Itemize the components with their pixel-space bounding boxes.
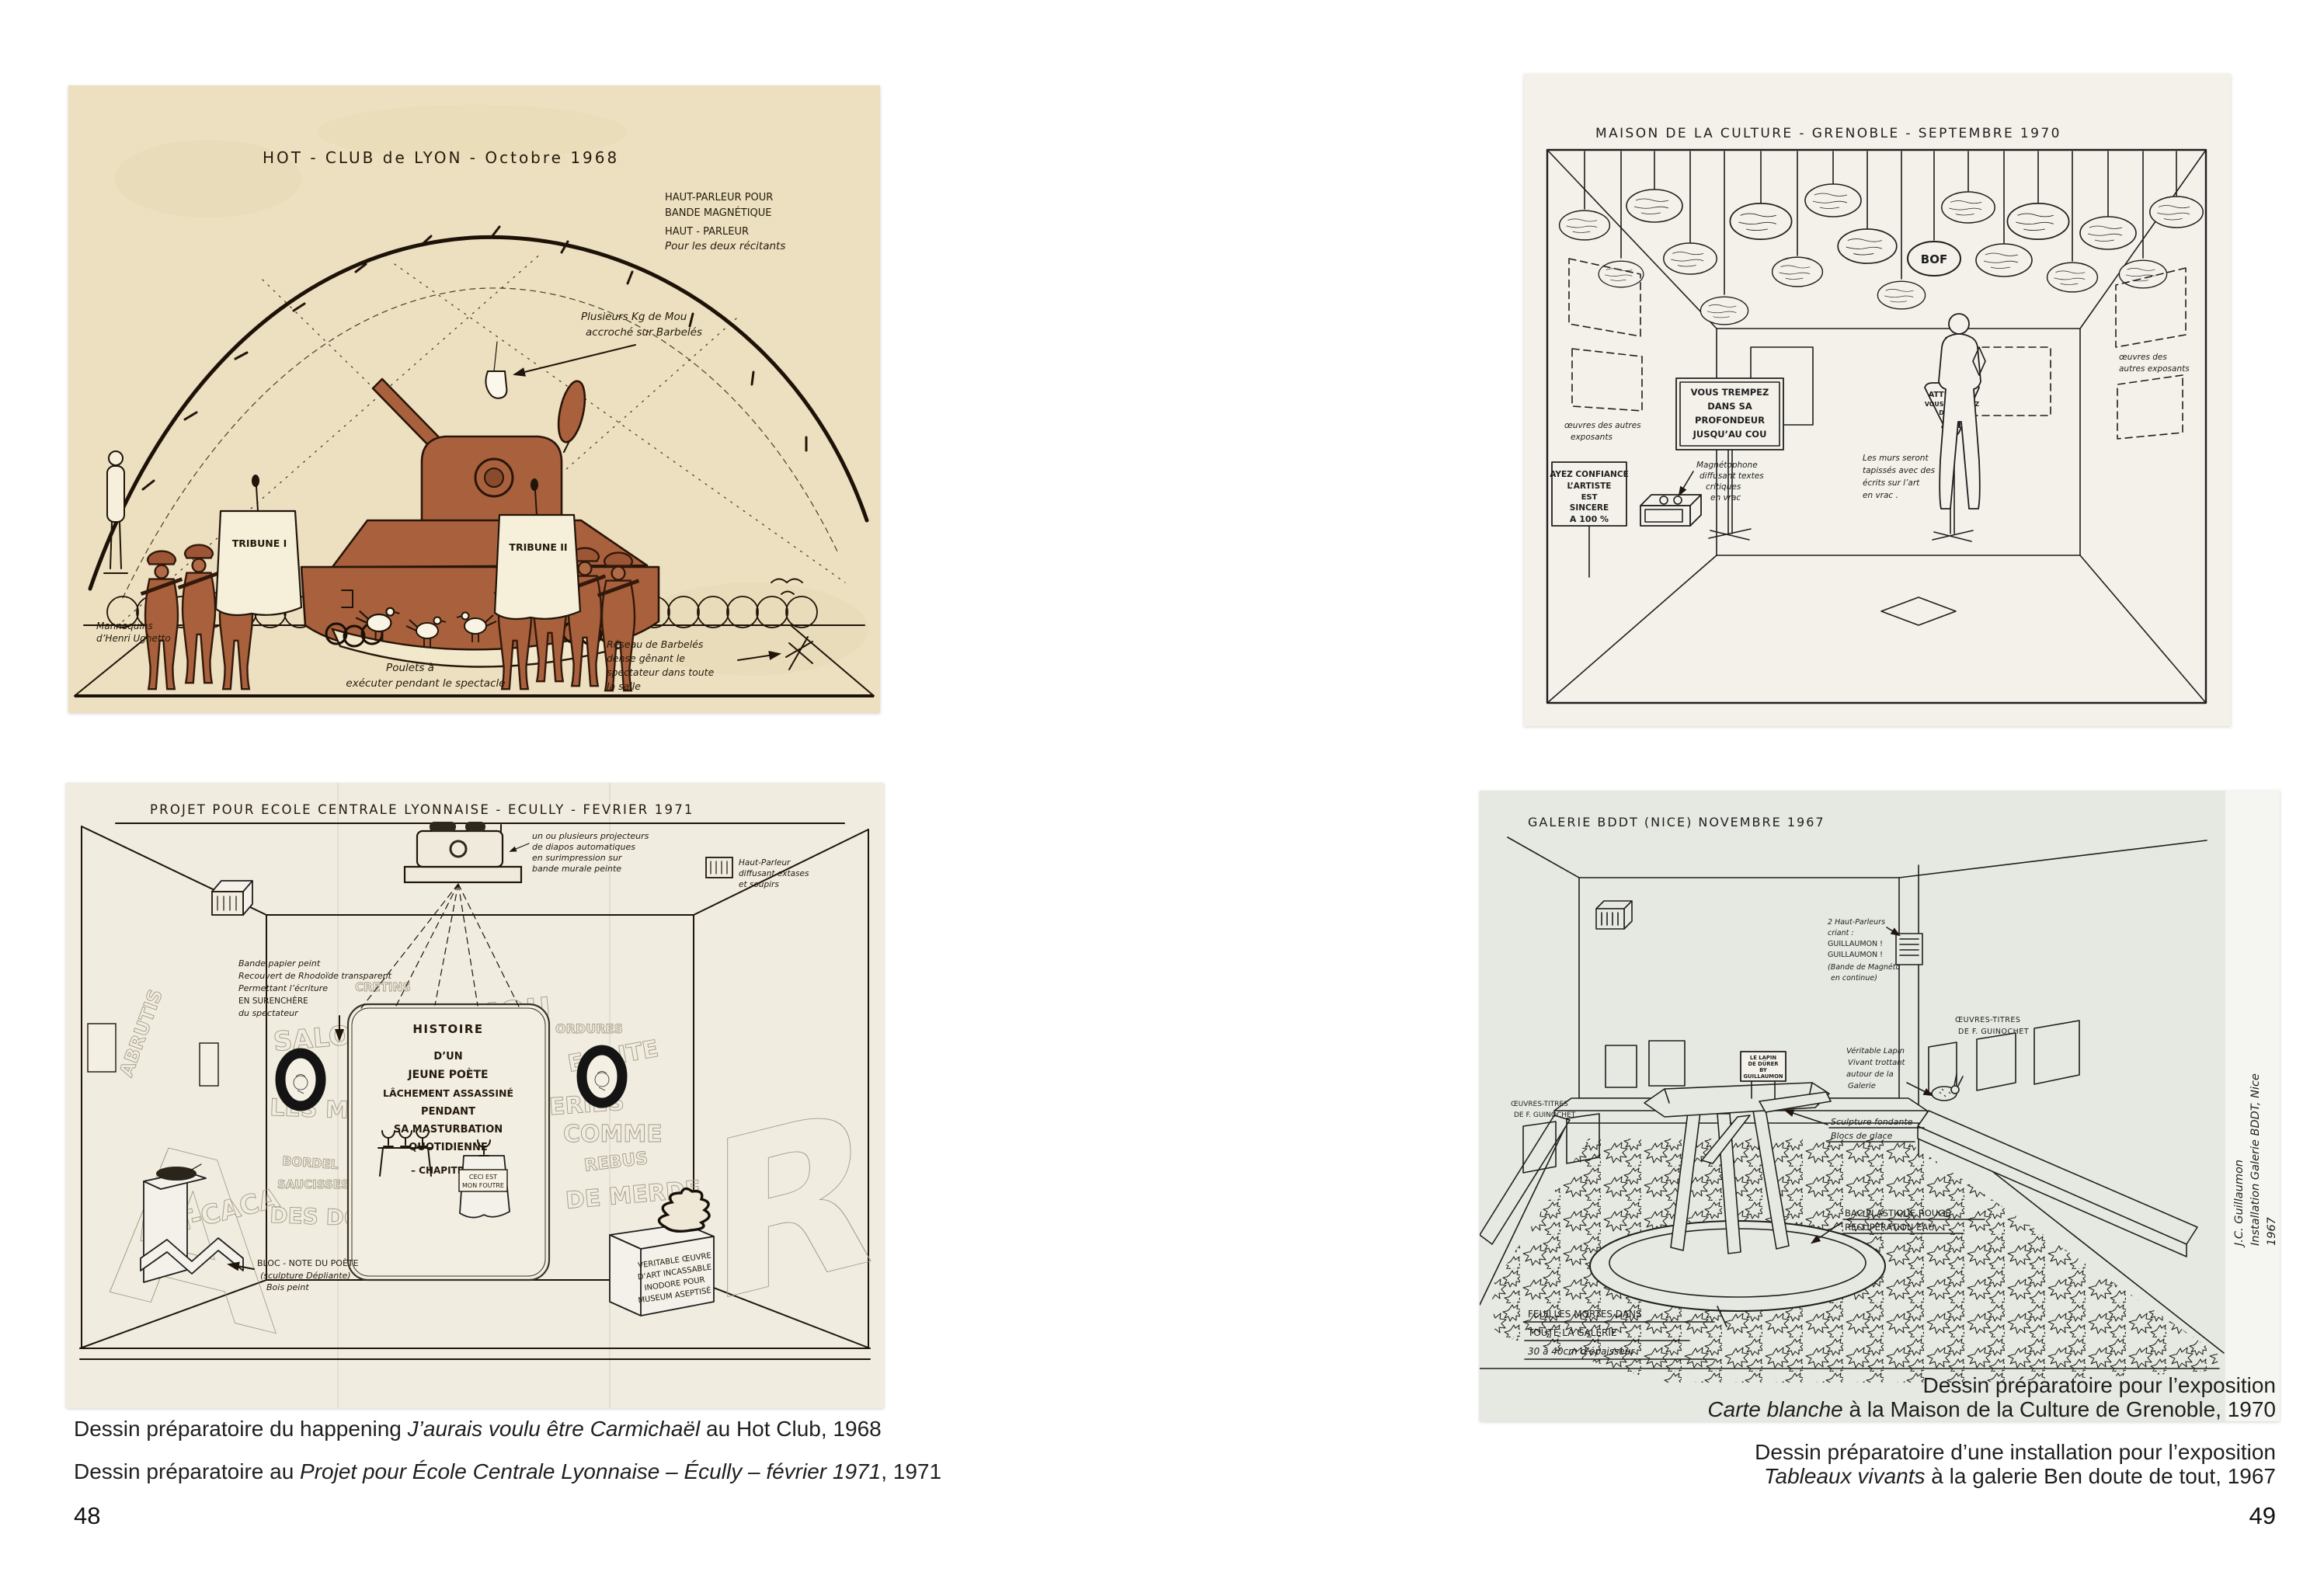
caption-text: Dessin préparatoire pour l’exposition (1923, 1373, 2276, 1397)
sign-line: A 100 % (1570, 514, 1609, 524)
note-line: autres exposants (2119, 364, 2190, 374)
note-line: EN SURENCHÈRE (238, 996, 308, 1006)
note-line: spectateur dans toute (607, 666, 715, 678)
panel-line: PENDANT (421, 1106, 475, 1118)
caption-text: Dessin préparatoire du happening (74, 1417, 408, 1441)
sign-line: DE DÜRER (1748, 1060, 1780, 1067)
caption-text: à la Maison de la Culture de Grenoble, 1… (1843, 1397, 2276, 1421)
wall-letter-R: R (708, 1059, 875, 1354)
tribune-2-label: TRIBUNE II (509, 541, 567, 553)
bof-bubble: BOF (1908, 242, 1960, 276)
note-line: en vrac . (1863, 491, 1898, 500)
caption-bddt: Dessin préparatoire d’une installation p… (1707, 1440, 2276, 1488)
sign-line: AYEZ CONFIANCE (1550, 470, 1628, 479)
ceiling-speaker-icon (212, 881, 252, 915)
note-line: diffusant extases (739, 869, 809, 878)
bof-label: BOF (1921, 252, 1947, 266)
visitor-figure (1939, 314, 1985, 509)
sign-line: CECI EST (469, 1174, 497, 1181)
tribune-1-label: TRIBUNE I (232, 537, 287, 549)
note-line: et soupirs (739, 880, 779, 889)
note-line: Véritable Lapin (1846, 1046, 1905, 1056)
note-line: Sculpture fondante (1831, 1117, 1913, 1127)
caption-italic: Projet pour École Centrale Lyonnaise – É… (300, 1459, 881, 1483)
tape-line: 1967 (2266, 1216, 2278, 1246)
note-line: DE F. GUINOCHET (1958, 1028, 2029, 1036)
note-line: Galerie (1848, 1082, 1876, 1090)
note-line: (Bande de Magnéto (1828, 963, 1900, 972)
panel-line: LÂCHEMENT ASSASSINÉ (383, 1087, 513, 1099)
note-line: (sculpture Dépliante) (260, 1271, 351, 1281)
note-line: BLOC - NOTE DU POÈTE (257, 1258, 359, 1268)
ecole-sketch: PROJET POUR ECOLE CENTRALE LYONNAISE - E… (66, 783, 884, 1408)
note-line: 30 à 40cm d’épaisseur (1528, 1346, 1635, 1357)
sign-line: L’ARTISTE (1567, 482, 1612, 491)
bddt-title: GALERIE BDDT (NICE) NOVEMBRE 1967 (1528, 815, 1825, 829)
panel-line: D’UN (433, 1051, 462, 1062)
note-line: BAC PLASTIQUE ROUGE (1845, 1208, 1950, 1219)
note-line: RECUPERATION EAU (1845, 1222, 1935, 1233)
note-line: tapissés avec des (1863, 466, 1936, 475)
wall-speaker-icon (706, 857, 732, 878)
maison-title: MAISON DE LA CULTURE - GRENOBLE - SEPTEM… (1595, 126, 2061, 141)
wall-letter-O-left (280, 1053, 321, 1106)
tape-line: J.C. Guillaumon (2233, 1160, 2246, 1248)
note-line: ŒUVRES-TITRES (1955, 1016, 2020, 1024)
note-line: Les murs seront (1863, 454, 1929, 463)
caption-hotclub: Dessin préparatoire du happening J’aurai… (74, 1417, 941, 1441)
graffiti: CRETINS (355, 980, 411, 994)
sign-line: LE LAPIN (1750, 1055, 1776, 1061)
graffiti: REBUS (583, 1149, 649, 1176)
note-line: FEUILLES MORTES DANS (1528, 1309, 1642, 1320)
note-line: écrits sur l’art (1863, 478, 1920, 488)
speech-bubbles: BOF (1560, 151, 2204, 325)
note-line: Haut-Parleur (739, 858, 791, 868)
magnetophone-icon (1640, 495, 1701, 526)
caption-text: , 1971 (881, 1459, 941, 1483)
note-line: Poulets à (386, 662, 434, 674)
note-line: HAUT-PARLEUR POUR (665, 192, 773, 203)
caption-italic: J’aurais voulu être Carmichaël (408, 1417, 701, 1441)
captions-left-block: Dessin préparatoire du happening J’aurai… (74, 1417, 941, 1502)
caption-italic: Carte blanche (1707, 1397, 1842, 1421)
sign-line: MON FOUTRE (462, 1182, 504, 1189)
graffiti: BORDEL (282, 1153, 339, 1172)
note-line: Magnétophone (1696, 461, 1758, 470)
wall-letter-A: A (109, 1090, 279, 1386)
note-line: en surimpression sur (532, 853, 623, 863)
rabbit-figure (1932, 1074, 1963, 1101)
caption-italic: Tableaux vivants (1764, 1464, 1926, 1488)
page-number-right: 49 (2249, 1502, 2276, 1530)
note-line: autour de la (1846, 1070, 1894, 1079)
graffiti: SAUCISSES (277, 1177, 350, 1191)
tape-line: Installation Galerie BDDT, Nice (2249, 1073, 2262, 1246)
note-line: Vivant trottant (1848, 1059, 1906, 1067)
note-line: œuvres des autres (1564, 421, 1641, 430)
note-line: d’Henri Ughetto (96, 633, 171, 644)
mannequin-figure (104, 451, 127, 573)
maison-sketch: MAISON DE LA CULTURE - GRENOBLE - SEPTEM… (1524, 74, 2231, 726)
note-line: TOUTE LA GALERIE (1527, 1327, 1617, 1338)
sign-line: DANS SA (1707, 401, 1752, 412)
sign-line: GUILLAUMON (1743, 1073, 1783, 1080)
note-line: BANDE MAGNÉTIQUE (665, 207, 772, 219)
caption-text: au Hot Club, 1968 (700, 1417, 882, 1441)
note-line: Bande papier peint (238, 958, 321, 969)
note-line: 2 Haut-Parleurs (1828, 918, 1885, 927)
sign-line: BY (1759, 1067, 1767, 1073)
note-line: Bois peint (266, 1282, 309, 1292)
sign-line: JUSQU’AU COU (1693, 429, 1767, 440)
sign-line: PROFONDEUR (1695, 415, 1765, 426)
artwork-maison-drawing: MAISON DE LA CULTURE - GRENOBLE - SEPTEM… (1524, 74, 2231, 726)
note-line: HAUT - PARLEUR (665, 226, 749, 238)
note-line: Pour les deux récitants (665, 240, 785, 252)
artwork-hotclub-drawing: HOT - CLUB de LYON - Octobre 1968 (68, 85, 880, 713)
note-line: en vrac (1710, 493, 1741, 503)
note-line: accroché sur Barbelés (586, 326, 702, 339)
hanging-mou-glove (485, 342, 506, 398)
caption-text: à la galerie Ben doute de tout, 1967 (1926, 1464, 2276, 1488)
note-line: exécuter pendant le spectacle (346, 677, 505, 690)
note-line: un ou plusieurs projecteurs (532, 831, 649, 841)
graffiti: COMME (563, 1121, 663, 1148)
captions-right-block: Dessin préparatoire pour l’expositionCar… (1707, 1373, 2276, 1507)
sign-line: VOUS TREMPEZ (1691, 387, 1769, 398)
bddt-sketch: GALERIE BDDT (NICE) NOVEMBRE 1967 (1480, 791, 2280, 1421)
note-line: GUILLAUMON ! (1828, 951, 1883, 959)
note-line: Blocs de glace (1831, 1131, 1893, 1141)
note-line: criant : (1828, 929, 1854, 937)
speaker-left-icon (1596, 901, 1632, 929)
note-line: Mannequins (96, 621, 153, 631)
tribune-1: TRIBUNE I (216, 475, 301, 615)
maison-annotations: Magnétophone diffusant textes critiques … (1564, 353, 2190, 503)
page-number-left: 48 (74, 1502, 100, 1530)
book-spread: HOT - CLUB de LYON - Octobre 1968 (0, 0, 2324, 1572)
note-line: Plusieurs Kg de Mou (581, 311, 687, 323)
hotclub-sketch: HOT - CLUB de LYON - Octobre 1968 (68, 85, 880, 713)
note-line: GUILLAUMON ! (1828, 940, 1883, 948)
note-line: la salle (607, 680, 641, 692)
graffiti: ORDURES (555, 1021, 623, 1036)
speaker-right-icon (1896, 934, 1922, 965)
panel-line: HISTOIRE (412, 1022, 483, 1036)
central-text-panel: HISTOIRE D’UN JEUNE POÈTE LÂCHEMENT ASSA… (348, 1004, 549, 1280)
note-line: ŒUVRES-TITRES (1511, 1101, 1568, 1108)
caption-text: Dessin préparatoire au (74, 1459, 300, 1483)
graffiti: ABRUTIS (115, 986, 166, 1080)
caption-maison: Dessin préparatoire pour l’expositionCar… (1707, 1373, 2276, 1421)
artwork-ecole-drawing: PROJET POUR ECOLE CENTRALE LYONNAISE - E… (66, 783, 884, 1408)
note-line: DE F. GUINOCHET (1514, 1111, 1576, 1119)
note-line: bande murale peinte (532, 864, 621, 874)
wall-letter-O-right (582, 1050, 622, 1103)
note-line: de diapos automatiques (532, 842, 635, 852)
floor-diamond (1881, 597, 1956, 625)
note-line: en continue) (1831, 974, 1877, 982)
panel-line: SA MASTURBATION (394, 1124, 503, 1136)
artwork-bddt-drawing: GALERIE BDDT (NICE) NOVEMBRE 1967 (1480, 791, 2280, 1421)
sign-confiance: AYEZ CONFIANCE L’ARTISTE EST SINCERE A 1… (1550, 462, 1628, 577)
caption-ecole: Dessin préparatoire au Projet pour École… (74, 1459, 941, 1483)
hotclub-title: HOT - CLUB de LYON - Octobre 1968 (263, 148, 619, 167)
sign-line: SINCERE (1570, 503, 1609, 513)
note-line: dense gênant le (607, 652, 685, 664)
note-line: Recouvert de Rhodoïde transparent (238, 971, 392, 981)
note-line: critiques (1706, 482, 1741, 492)
panel-line: JEUNE POÈTE (407, 1068, 488, 1081)
caption-text: Dessin préparatoire d’une installation p… (1755, 1440, 2276, 1464)
left-wall-frames (88, 1024, 218, 1086)
note-line: du spectateur (238, 1008, 299, 1018)
ecole-title: PROJET POUR ECOLE CENTRALE LYONNAISE - E… (150, 802, 694, 817)
note-line: diffusant textes (1700, 471, 1764, 481)
note-line: exposants (1571, 433, 1613, 442)
sign-line: EST (1581, 493, 1598, 502)
note-line: Permettant l’écriture (238, 983, 328, 993)
back-wall-frames (1606, 1041, 1685, 1087)
note-line: Réseau de Barbelés (607, 638, 704, 650)
note-line: œuvres des (2119, 353, 2167, 362)
